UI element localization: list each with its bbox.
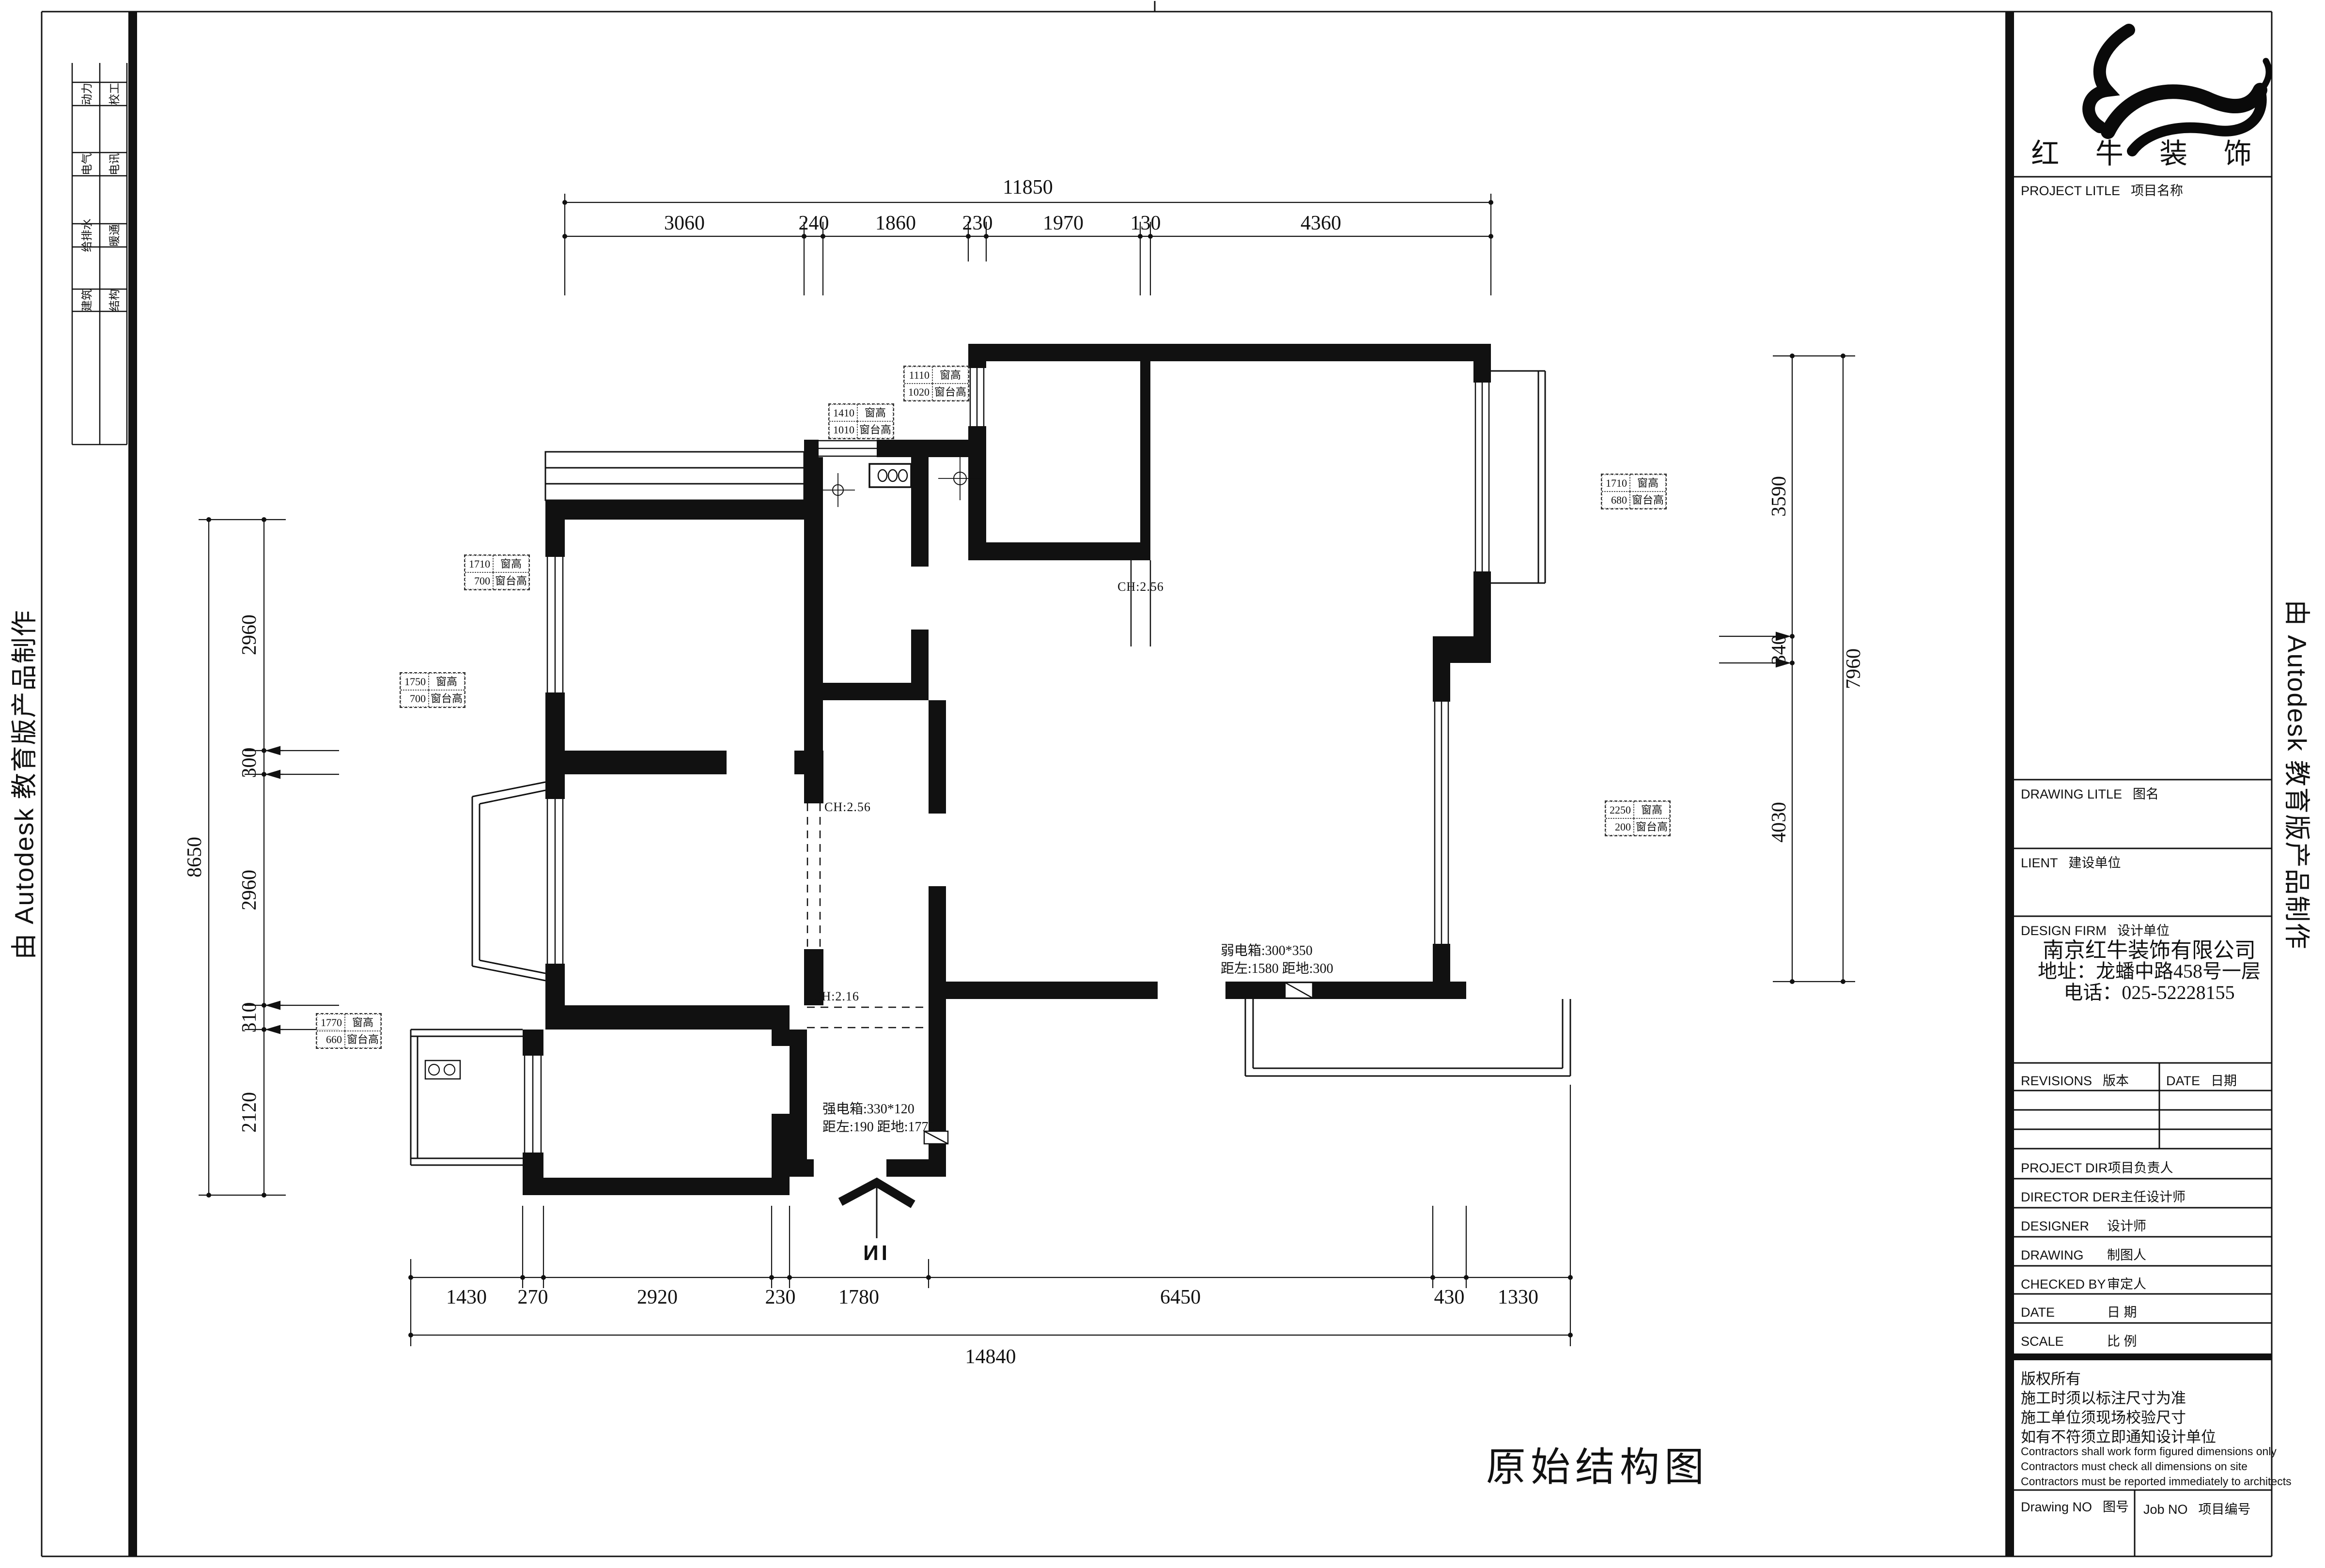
date-col-label-cn: 日期	[2211, 1074, 2237, 1088]
wall	[946, 982, 1158, 999]
window-height-label: 窗高	[1630, 475, 1666, 492]
strong-box-line2: 距左:190 距地:1770	[822, 1118, 935, 1136]
stamp-plumbing: 给排水	[77, 219, 94, 252]
window-height-label: 窗高	[857, 404, 893, 421]
wall	[804, 774, 823, 803]
director-label-en: DIRECTOR DER	[2021, 1190, 2120, 1205]
wall	[545, 964, 565, 1005]
title-block-thick-rule	[2014, 1353, 2272, 1360]
project-dir-label-en: PROJECT DIR	[2021, 1161, 2108, 1176]
window-height-value: 1750	[401, 673, 429, 690]
dim-top: 1860	[875, 212, 916, 234]
checked-by-label-en: CHECKED BY	[2021, 1277, 2107, 1292]
window-sill-label: 窗台高	[493, 572, 529, 589]
meter-icon	[444, 1064, 455, 1075]
scale-label-cn: 比 例	[2107, 1334, 2137, 1349]
wall	[523, 1030, 543, 1056]
wall	[790, 1030, 807, 1177]
project-dir-label-cn: 项目负责人	[2108, 1161, 2173, 1175]
drawing-sheet: 11850 3060 240 1860 230 1970 130 4360 86…	[0, 0, 2325, 1568]
window-sill-value: 680	[1602, 492, 1630, 508]
date-column-header: DATE日期	[2166, 1070, 2237, 1089]
kitchen-counter	[869, 464, 911, 487]
wall	[545, 774, 565, 799]
dim-left: 2120	[238, 1092, 261, 1133]
stamp-check: 校工	[105, 83, 122, 105]
window-tag: 1710窗高 680窗台高	[1601, 474, 1667, 509]
drawing-person-label-cn: 制图人	[2107, 1248, 2146, 1262]
dimension-lines	[199, 194, 1855, 1346]
window-height-value: 1710	[465, 555, 493, 572]
wall	[545, 1005, 790, 1030]
autodesk-stamp-right: 由 Autodesk 教育版产品制作	[2280, 600, 2319, 950]
dim-right: 3590	[1768, 476, 1790, 517]
window-sill-value: 1020	[904, 384, 932, 400]
dim-left-total: 8650	[184, 837, 206, 877]
stamp-electric: 电气	[77, 153, 94, 175]
wall	[929, 700, 946, 814]
dim-right: 4030	[1768, 802, 1790, 843]
contractor-line: Contractors must check all dimensions on…	[2021, 1459, 2292, 1474]
wall	[1433, 636, 1491, 663]
dim-bottom-total: 14840	[965, 1346, 1016, 1368]
window-sill-value: 1010	[829, 421, 857, 438]
window-height-label: 窗高	[1634, 801, 1670, 818]
wall	[968, 344, 986, 368]
wall	[545, 500, 565, 557]
copyright-line: 施工时须以标注尺寸为准	[2021, 1389, 2216, 1408]
window-sill-label: 窗台高	[1634, 818, 1670, 835]
drawing-no-label-cn: 图号	[2103, 1500, 2129, 1514]
drawing-title-label-en: DRAWING LITLE	[2021, 787, 2122, 801]
autodesk-stamp-left: 由 Autodesk 教育版产品制作	[3, 609, 41, 959]
date-label-cn: 日 期	[2107, 1305, 2137, 1320]
window-tag: 1410窗高 1010窗台高	[828, 403, 894, 439]
dim-left: 300	[238, 748, 261, 778]
stamp-hvac: 暖通	[105, 224, 122, 246]
plan-title: 原始结构图	[1486, 1435, 1709, 1492]
walls	[523, 344, 1491, 1195]
drawing-title-label-cn: 图名	[2133, 787, 2159, 801]
dim-left: 2960	[238, 615, 261, 655]
drawing-person-label-en: DRAWING	[2021, 1248, 2107, 1263]
stamp-structure: 结构	[105, 289, 122, 311]
drawing-no-label-en: Drawing NO	[2021, 1500, 2092, 1514]
wall	[794, 751, 823, 774]
window-height-label: 窗高	[932, 367, 968, 384]
plan-canvas: 11850 3060 240 1860 230 1970 130 4360 86…	[0, 0, 2325, 1568]
burner-icon	[888, 470, 897, 481]
project-title-label-en: PROJECT LITLE	[2021, 184, 2120, 198]
wall	[804, 457, 823, 774]
wall	[545, 692, 565, 751]
dim-top: 3060	[664, 212, 705, 234]
wall	[1433, 663, 1450, 702]
revisions-label-cn: 版本	[2103, 1074, 2129, 1088]
beam-lines	[807, 560, 1150, 1028]
stamp-arch: 建筑	[77, 289, 94, 311]
window-sill-value: 660	[317, 1031, 345, 1048]
wall	[790, 1159, 814, 1177]
checked-by-row: CHECKED BY审定人	[2021, 1274, 2146, 1292]
contractor-line: Contractors shall work form figured dime…	[2021, 1444, 2292, 1459]
window-sill-label: 窗台高	[429, 690, 465, 707]
copyright-line: 施工单位须现场校验尺寸	[2021, 1408, 2216, 1428]
director-row: DIRECTOR DER主任设计师	[2021, 1186, 2185, 1205]
wall	[772, 1114, 790, 1178]
window-height-value: 1770	[317, 1014, 345, 1031]
dim-right-total: 7960	[1843, 648, 1865, 689]
designer-label-en: DESIGNER	[2021, 1219, 2107, 1234]
drawing-title-row: DRAWING LITLE图名	[2021, 784, 2159, 802]
client-row: LIENT建设单位	[2021, 852, 2121, 871]
wall	[545, 751, 727, 774]
weak-box-line2: 距左:1580 距地:300	[1221, 960, 1333, 978]
dimension-ticks	[206, 200, 1845, 1337]
wall	[886, 1159, 946, 1177]
window-height-label: 窗高	[429, 673, 465, 690]
wall	[929, 982, 946, 999]
inner-border-left-bar	[128, 12, 137, 1556]
margin-stamp-grid	[72, 63, 127, 445]
dim-left: 2960	[238, 870, 261, 910]
contractor-notes: Contractors shall work form figured dime…	[2021, 1444, 2292, 1489]
wall	[968, 457, 986, 560]
drawing-person-row: DRAWING制图人	[2021, 1245, 2146, 1263]
dim-bottom: 1330	[1498, 1286, 1538, 1308]
project-title-label-cn: 项目名称	[2131, 184, 2183, 198]
job-no-label-cn: 项目编号	[2199, 1502, 2251, 1517]
window-height-value: 1110	[904, 367, 932, 384]
wall	[1140, 361, 1150, 542]
client-label-en: LIENT	[2021, 856, 2058, 870]
window-tag: 1710窗高 700窗台高	[464, 554, 530, 590]
stamp-telecom: 电讯	[105, 153, 122, 175]
dim-bottom: 6450	[1160, 1286, 1201, 1308]
date-label-en: DATE	[2021, 1305, 2107, 1320]
meter-icon	[429, 1064, 439, 1075]
dim-bottom: 2920	[637, 1286, 678, 1308]
dim-top-total: 11850	[1003, 176, 1053, 199]
wall	[929, 886, 946, 982]
date-col-label-en: DATE	[2166, 1074, 2200, 1088]
dim-top: 240	[799, 212, 829, 234]
wall	[1473, 571, 1491, 636]
dim-right: 340	[1768, 635, 1790, 665]
window-tag: 1110窗高 1020窗台高	[903, 366, 969, 401]
dim-bottom: 1430	[446, 1286, 487, 1308]
company-logo-name: 红 牛 装 饰	[2031, 131, 2266, 171]
dim-bottom: 230	[765, 1286, 796, 1308]
wall	[1473, 344, 1491, 383]
window-sill-value: 700	[401, 690, 429, 707]
ceiling-height-label: CH:2.56	[1117, 580, 1164, 594]
scale-label-en: SCALE	[2021, 1334, 2107, 1349]
director-label-cn: 主任设计师	[2120, 1190, 2185, 1204]
burner-icon	[899, 470, 907, 481]
revisions-label-en: REVISIONS	[2021, 1074, 2092, 1088]
window-sill-value: 200	[1606, 818, 1634, 835]
wall	[1225, 982, 1466, 999]
title-block-left-bar	[2005, 12, 2014, 1556]
dim-top: 130	[1131, 212, 1161, 234]
job-no-row: Job NO项目编号	[2143, 1499, 2251, 1518]
wall	[804, 440, 819, 457]
weak-current-box-note: 弱电箱:300*350 距左:1580 距地:300	[1221, 942, 1333, 978]
burner-icon	[878, 470, 887, 481]
dim-bottom: 1780	[838, 1286, 879, 1308]
dim-left: 310	[238, 1002, 261, 1033]
copyright-line: 版权所有	[2021, 1369, 2216, 1389]
window-sill-value: 700	[465, 572, 493, 589]
date-row: DATE日 期	[2021, 1302, 2137, 1321]
client-label-cn: 建设单位	[2069, 856, 2121, 870]
project-title-row: PROJECT LITLE项目名称	[2021, 180, 2183, 199]
window-tag: 2250窗高 200窗台高	[1605, 800, 1671, 836]
copyright-notes: 版权所有 施工时须以标注尺寸为准 施工单位须现场校验尺寸 如有不符须立即通知设计…	[2021, 1369, 2216, 1447]
window-sill-label: 窗台高	[1630, 492, 1666, 508]
dim-top: 1970	[1043, 212, 1084, 234]
revisions-header: REVISIONS版本	[2021, 1070, 2129, 1089]
ceiling-height-label: CH:2.56	[824, 800, 871, 815]
wall	[911, 457, 929, 567]
dim-top: 4360	[1301, 212, 1341, 234]
wall	[986, 344, 1491, 361]
dim-bottom: 270	[518, 1286, 548, 1308]
scale-row: SCALE比 例	[2021, 1331, 2137, 1350]
entrance-arrow-icon	[840, 1183, 913, 1238]
firm-phone: 电话：025-52228155	[2063, 977, 2234, 1005]
stamp-power: 动力	[77, 83, 94, 105]
window-sill-label: 窗台高	[857, 421, 893, 438]
ceiling-height-label: CH:2.16	[813, 989, 859, 1004]
designer-label-cn: 设计师	[2107, 1219, 2146, 1233]
window-tag: 1770窗高 660窗台高	[316, 1013, 382, 1049]
dim-bottom: 430	[1434, 1286, 1465, 1308]
window-sill-label: 窗台高	[932, 384, 968, 400]
window-height-label: 窗高	[493, 555, 529, 572]
window-height-value: 2250	[1606, 801, 1634, 818]
window-height-value: 1410	[829, 404, 857, 421]
checked-by-label-cn: 审定人	[2107, 1277, 2146, 1291]
drawing-no-row: Drawing NO图号	[2021, 1496, 2129, 1515]
dim-top: 230	[962, 212, 993, 234]
wall	[772, 1030, 790, 1046]
wall	[986, 542, 1150, 560]
project-dir-row: PROJECT DIR项目负责人	[2021, 1157, 2173, 1176]
contractor-line: Contractors must be reported immediately…	[2021, 1474, 2292, 1489]
strong-box-line1: 强电箱:330*120	[822, 1100, 935, 1118]
entrance-label: ИI	[863, 1241, 890, 1265]
designer-row: DESIGNER设计师	[2021, 1215, 2146, 1234]
window-tag: 1750窗高 700窗台高	[400, 672, 465, 708]
window-sill-label: 窗台高	[345, 1031, 381, 1048]
weak-box-line1: 弱电箱:300*350	[1221, 942, 1333, 960]
wall	[823, 683, 929, 700]
strong-current-box-note: 强电箱:330*120 距左:190 距地:1770	[822, 1100, 935, 1136]
window-height-value: 1710	[1602, 475, 1630, 492]
job-no-label-en: Job NO	[2143, 1502, 2188, 1517]
wall	[968, 426, 986, 457]
wall	[545, 500, 804, 520]
window-height-label: 窗高	[345, 1014, 381, 1031]
wall	[523, 1178, 790, 1195]
